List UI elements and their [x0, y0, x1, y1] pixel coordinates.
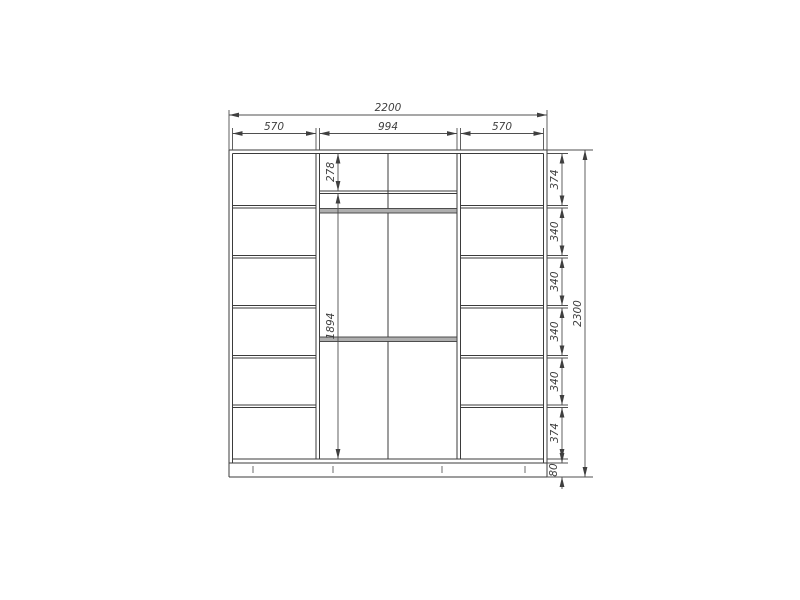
dim-hanging-space-height: 1894 [325, 313, 337, 340]
left-section-shelves [233, 206, 317, 408]
dim-left-width: 570 [264, 121, 284, 133]
dimension-annotations: 2200 570 994 570 374 340 340 340 340 374… [229, 102, 593, 489]
dim-middle-width: 994 [378, 121, 398, 133]
dim-right-segment-5: 340 [549, 371, 561, 391]
dim-plinth-height: 80 [548, 463, 560, 477]
dim-total-height: 2300 [572, 300, 584, 327]
dim-right-segment-4: 340 [549, 321, 561, 341]
dim-right-segment-1: 374 [549, 169, 561, 189]
plinth-feet-marks [253, 466, 525, 473]
wardrobe-technical-drawing: 2200 570 994 570 374 340 340 340 340 374… [0, 0, 800, 600]
extension-lines [229, 110, 593, 477]
dim-right-width: 570 [492, 121, 512, 133]
dim-right-segment-6: 374 [549, 423, 561, 443]
dim-right-segment-2: 340 [549, 221, 561, 241]
dim-total-width: 2200 [375, 102, 402, 114]
dimension-arrows [229, 113, 587, 487]
dimension-lines [229, 115, 585, 489]
right-section-shelves [461, 206, 544, 408]
drawing-svg: 2200 570 994 570 374 340 340 340 340 374… [0, 0, 800, 600]
hanging-rail-lower [320, 337, 458, 342]
carcass-outline [229, 150, 547, 477]
dim-top-compartment-height: 278 [325, 162, 337, 182]
dim-right-segment-3: 340 [549, 271, 561, 291]
hanging-rail-upper [320, 209, 458, 214]
wardrobe-structure [229, 150, 547, 477]
